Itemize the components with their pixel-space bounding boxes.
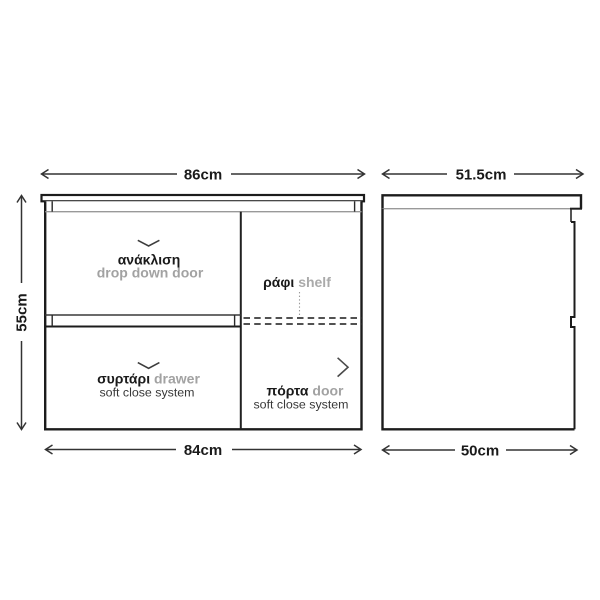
svg-text:84cm: 84cm [184,442,222,459]
svg-text:55cm: 55cm [14,293,31,331]
svg-text:συρτάρι drawer: συρτάρι drawer [97,371,200,387]
svg-text:soft close system: soft close system [253,398,348,412]
svg-text:drop down door: drop down door [97,265,204,281]
svg-text:50cm: 50cm [461,443,499,460]
svg-text:86cm: 86cm [184,167,222,184]
svg-text:51.5cm: 51.5cm [456,167,507,184]
svg-text:soft close system: soft close system [99,386,194,400]
svg-text:πόρτα door: πόρτα door [266,383,344,399]
svg-text:ράφι shelf: ράφι shelf [263,274,331,290]
